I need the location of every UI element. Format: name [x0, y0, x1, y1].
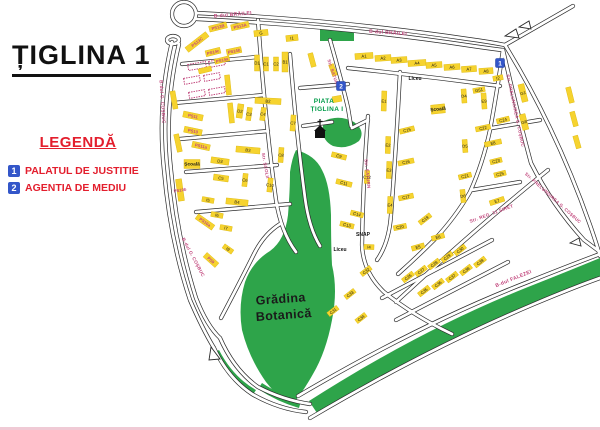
road [362, 116, 452, 334]
block-label: G [259, 30, 263, 35]
block: PS9 [203, 252, 219, 267]
block: PS11a [192, 141, 211, 151]
block: C20 [393, 223, 407, 231]
block: C3 [245, 107, 253, 121]
block-label: E1 [381, 99, 387, 104]
block: E3 [386, 161, 392, 178]
block-label: G51 [475, 87, 484, 93]
traffic-island [570, 238, 581, 246]
block-label: C3 [246, 111, 253, 117]
block: C36 [431, 278, 444, 290]
block: PS14a [214, 56, 230, 65]
block: B1 [282, 52, 288, 72]
block: I2 [493, 75, 504, 82]
block: I7 [220, 224, 233, 231]
block: Școală [430, 104, 447, 115]
block [174, 134, 183, 153]
block: A2 [375, 54, 391, 61]
block: PS13B [209, 22, 228, 32]
block [570, 111, 579, 127]
block: D3 [211, 157, 230, 165]
traffic-island [519, 21, 531, 29]
block-label: C10 [266, 182, 275, 188]
block-label: C2 [273, 62, 279, 67]
street-label: B-dul BRĂILEI [214, 9, 253, 19]
road [362, 116, 452, 334]
hatched-building [184, 76, 201, 85]
block: I9 [222, 244, 234, 254]
block-shape [570, 111, 579, 127]
block-label: Școală [184, 162, 200, 168]
block: PS14b [226, 47, 242, 56]
block: C37 [445, 271, 458, 283]
road [505, 45, 600, 256]
road [348, 68, 500, 86]
block: I6 [211, 211, 224, 218]
road [382, 240, 492, 298]
block-label: E3 [386, 168, 392, 173]
block [227, 103, 234, 123]
block: A6 [444, 63, 460, 70]
road-fills [162, 2, 600, 418]
block: C16 [398, 158, 415, 166]
block: C13 [340, 221, 355, 229]
block: E6 [431, 233, 445, 241]
church-body [315, 131, 325, 138]
block: C34 [355, 312, 368, 323]
block: E7 [489, 196, 505, 205]
block-label: B2 [265, 98, 271, 103]
block: C33 [344, 288, 357, 299]
block: G [254, 29, 269, 36]
hatched-building [209, 87, 226, 96]
road [310, 278, 600, 418]
block [224, 75, 231, 95]
road [472, 182, 520, 190]
block-shape [227, 103, 234, 123]
road [174, 95, 264, 103]
block-shape [308, 53, 316, 68]
block: C23 [490, 157, 503, 165]
block-shape [174, 134, 183, 153]
block-shape [573, 135, 581, 149]
poi-label: Liceu [408, 76, 421, 82]
block: C5 [213, 174, 229, 182]
marker-number: 1 [498, 60, 502, 67]
block: E1 [381, 91, 387, 111]
block: C11 [336, 179, 353, 188]
map-page: ȚIGLINA 1 LEGENDĂ 1 PALATUL DE JUSTITIE … [0, 0, 600, 430]
block: I4 [364, 244, 374, 249]
block: A5 [426, 61, 442, 68]
hatched-building [189, 90, 206, 99]
block-label: D4 [461, 93, 467, 98]
block: E9 [481, 93, 488, 109]
block: A1 [355, 52, 373, 59]
block: D2 [236, 104, 244, 119]
block: C2 [273, 57, 279, 71]
block: Școală [184, 160, 200, 169]
block-label: PS14a [215, 56, 229, 64]
block-label: PS11 [188, 113, 199, 120]
block-label: C7 [290, 120, 296, 125]
block: B4 [226, 198, 249, 206]
block: B2 [255, 97, 281, 104]
area-label: ȚIGLINA I [311, 106, 344, 113]
block: C19 [418, 213, 432, 226]
marker-number: 2 [339, 83, 343, 90]
block: C21 [458, 172, 472, 180]
block: C39 [473, 256, 486, 268]
block: C8 [278, 147, 285, 162]
block-shape [224, 75, 231, 95]
road [310, 278, 600, 418]
block: G51 [473, 86, 486, 93]
block: D4 [461, 89, 468, 103]
block: PS14c [205, 47, 221, 56]
block-label: C8 [278, 152, 284, 157]
block: C35 [417, 285, 430, 297]
block: PS13C [185, 32, 209, 53]
road [505, 45, 600, 256]
block-label: PS10b [173, 187, 187, 194]
block: A7 [461, 65, 476, 72]
block-shape [566, 87, 575, 104]
block: C15 [399, 126, 415, 135]
block: I1 [286, 34, 299, 41]
poi-label: SNAP [356, 232, 371, 238]
block-label: E2 [385, 143, 391, 148]
road [172, 2, 196, 26]
block: A3 [391, 56, 407, 63]
block: D1 [254, 55, 260, 71]
traffic-island [505, 29, 519, 38]
block: C24 [496, 116, 510, 124]
block: B3 [236, 146, 260, 154]
block: C25 [494, 170, 507, 178]
block-label: C1 [263, 62, 269, 67]
block: C9 [331, 152, 347, 161]
block-label: C6 [242, 177, 249, 183]
block: C6 [242, 173, 249, 187]
green-area [241, 150, 335, 405]
block [573, 135, 581, 149]
block-label: E4 [387, 203, 393, 208]
block: C1 [263, 57, 269, 71]
block-label: PS10 [187, 128, 199, 135]
block: E2 [385, 136, 391, 153]
hatched-building [204, 73, 221, 82]
block: D5 [462, 139, 469, 152]
poi-label: Liceu [333, 247, 346, 253]
road [503, 50, 600, 252]
block: I5 [202, 196, 215, 203]
block-label: B1 [282, 60, 288, 65]
area-label: PIATA [314, 98, 335, 105]
map-marker-1: 1 [496, 59, 505, 68]
green-area [309, 258, 600, 413]
block-label: D5 [462, 143, 468, 148]
road [505, 6, 573, 45]
map-marker-2: 2 [337, 82, 346, 91]
block [566, 87, 575, 104]
block-label: D6 [460, 193, 467, 199]
block: PS11 [183, 111, 204, 121]
road [503, 50, 600, 252]
street-label: Str. REG. 11 SIRET [469, 203, 514, 224]
map-svg: PS13CPS13BPS13APS14cPS14bPS14aPS11PS10PS… [0, 0, 600, 430]
block-label: D1 [254, 61, 260, 66]
block [308, 53, 316, 68]
block: A4 [408, 59, 426, 66]
block: C38 [459, 264, 472, 276]
block: A8 [479, 68, 493, 75]
block: C17 [398, 193, 414, 201]
green-areas [214, 29, 600, 413]
block: PS10 [184, 126, 203, 136]
